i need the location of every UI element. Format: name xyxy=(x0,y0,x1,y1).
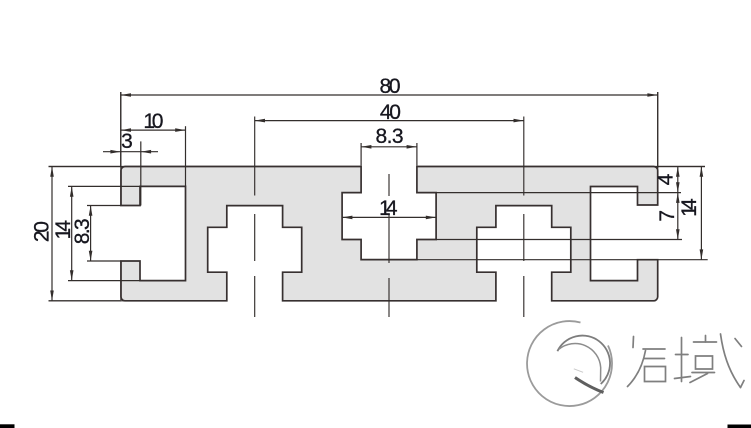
svg-text:3: 3 xyxy=(121,130,133,153)
svg-text:80: 80 xyxy=(380,75,401,98)
svg-text:8.3: 8.3 xyxy=(71,218,94,244)
svg-text:14: 14 xyxy=(379,197,398,220)
svg-text:40: 40 xyxy=(380,101,401,124)
svg-text:14: 14 xyxy=(678,198,701,217)
svg-text:4: 4 xyxy=(655,173,678,185)
svg-text:7: 7 xyxy=(656,210,679,222)
svg-text:10: 10 xyxy=(143,110,163,133)
svg-text:20: 20 xyxy=(31,221,54,242)
svg-text:8.3: 8.3 xyxy=(376,125,404,148)
